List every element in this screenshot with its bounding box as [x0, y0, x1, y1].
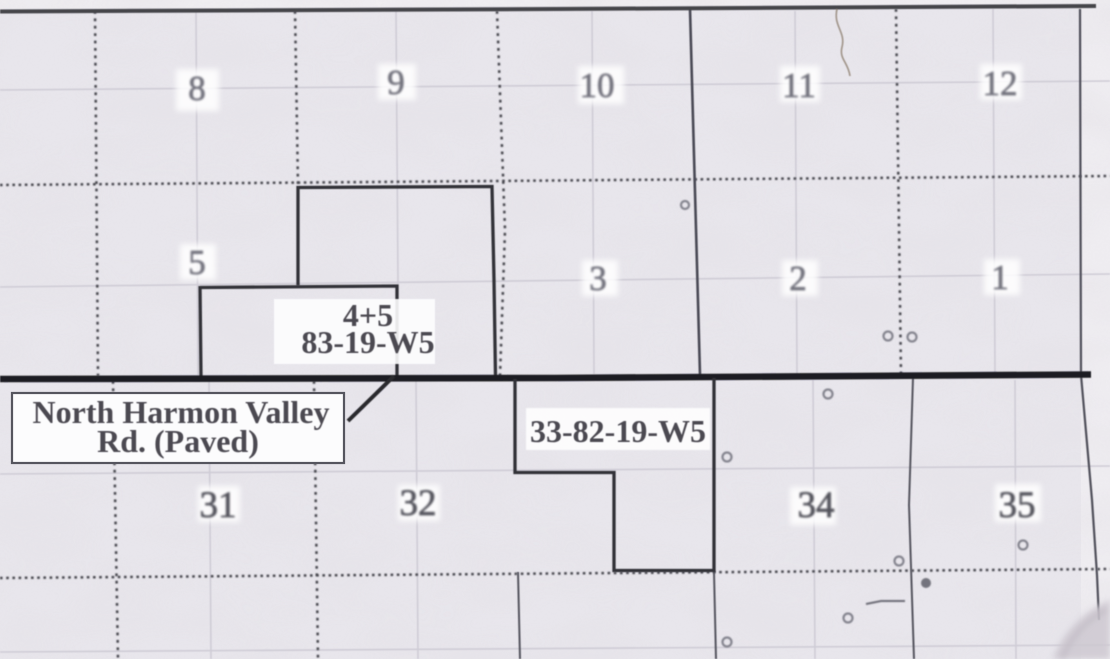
svg-text:33-82-19-W5: 33-82-19-W5: [530, 413, 706, 449]
svg-text:10: 10: [580, 66, 615, 105]
svg-text:32: 32: [400, 483, 437, 524]
svg-text:31: 31: [200, 485, 237, 526]
svg-text:12: 12: [983, 64, 1018, 103]
svg-text:11: 11: [782, 66, 816, 105]
svg-text:83-19-W5: 83-19-W5: [301, 324, 434, 360]
svg-text:9: 9: [387, 63, 405, 102]
svg-text:1: 1: [991, 258, 1009, 297]
svg-text:8: 8: [188, 69, 206, 108]
svg-text:35: 35: [999, 485, 1036, 526]
svg-text:5: 5: [188, 243, 206, 282]
svg-text:34: 34: [798, 485, 835, 526]
svg-text:3: 3: [589, 259, 607, 298]
svg-text:Rd. (Paved): Rd. (Paved): [97, 423, 259, 459]
svg-text:2: 2: [789, 259, 807, 298]
